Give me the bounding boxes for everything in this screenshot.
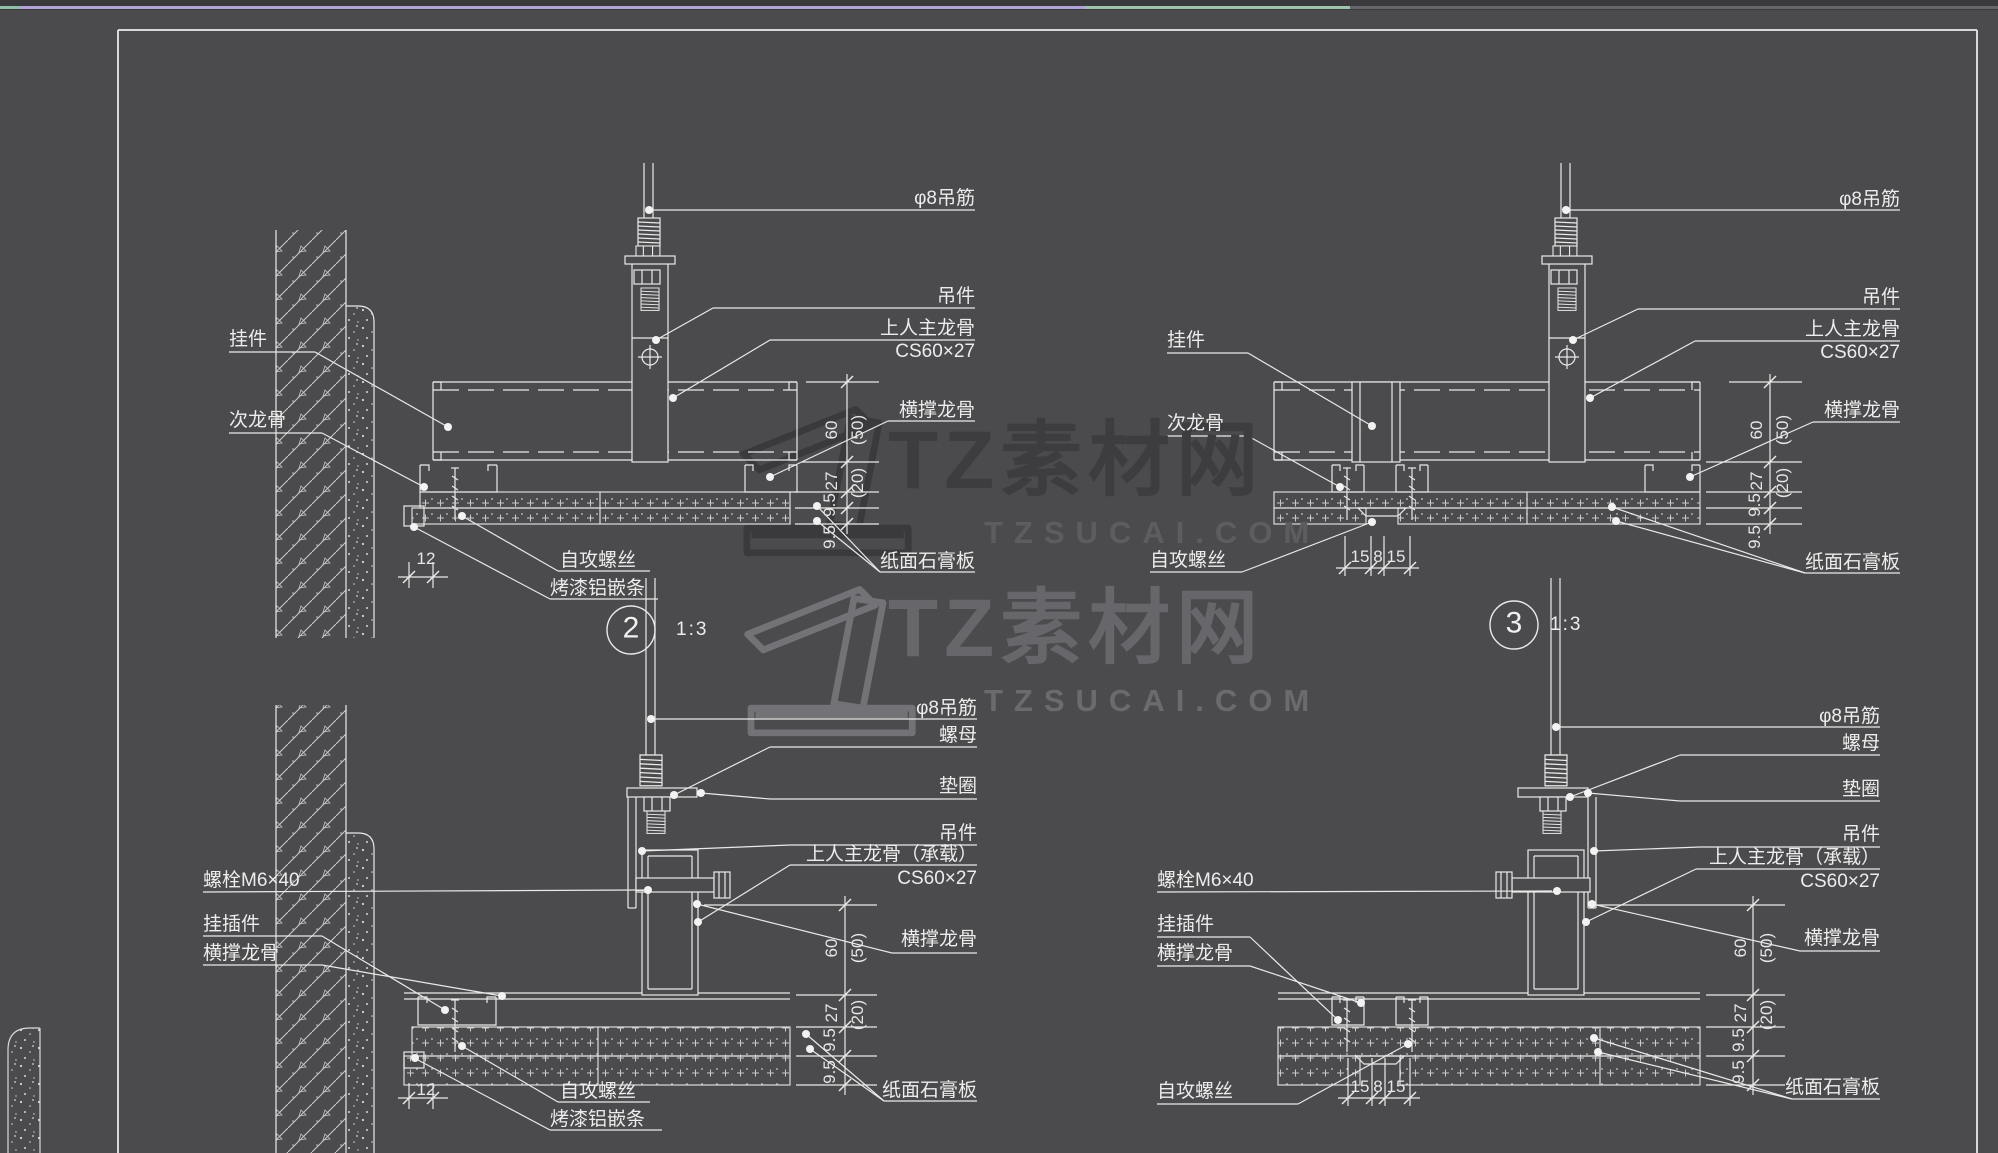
label-washer-br: 垫圈 bbox=[1842, 780, 1880, 800]
detail-scale-2: 1:3 bbox=[676, 619, 708, 641]
drawing-linework bbox=[0, 0, 1998, 1153]
dim-50-br: (50) bbox=[1757, 933, 1777, 963]
label-main-keel-load-br: 上人主龙骨（承载） bbox=[1709, 848, 1880, 868]
dim-15a-d3: 15 bbox=[1351, 547, 1370, 567]
label-bolt-bl: 螺栓M6×40 bbox=[203, 871, 300, 891]
label-nut-br: 螺母 bbox=[1842, 734, 1880, 754]
label-cross-keel-right-bl: 横撑龙骨 bbox=[901, 930, 977, 950]
dim-20-br: (20) bbox=[1757, 1000, 1777, 1030]
cad-sheet: TZ素材网 TZSUCAI.COM TZ素材网 TZSUCAI.COM 挂件 次… bbox=[0, 0, 1998, 1153]
watermark-brand-light: TZ素材网 bbox=[888, 588, 1264, 670]
label-keel-spec-br: CS60×27 bbox=[1800, 872, 1880, 892]
label-keel-spec-d2: CS60×27 bbox=[895, 342, 975, 362]
dim-20-bl: (20) bbox=[848, 1000, 868, 1030]
dim-20-d3: (20) bbox=[1773, 468, 1793, 498]
label-hook-insert-br: 挂插件 bbox=[1157, 915, 1214, 935]
label-main-keel-load-bl: 上人主龙骨（承载） bbox=[806, 845, 977, 865]
label-bolt-br: 螺栓M6×40 bbox=[1157, 871, 1254, 891]
label-cross-keel-d3: 横撑龙骨 bbox=[1824, 401, 1900, 421]
dim-60-d2: 60 bbox=[822, 421, 842, 440]
label-screw-bl: 自攻螺丝 bbox=[560, 1082, 636, 1102]
dim-8-br: 8 bbox=[1373, 1077, 1382, 1097]
label-washer-bl: 垫圈 bbox=[939, 777, 977, 797]
label-sub-keel-d2: 次龙骨 bbox=[229, 411, 286, 431]
label-cross-keel-right-br: 横撑龙骨 bbox=[1804, 929, 1880, 949]
dim-board2-d2: 9.5 bbox=[820, 525, 840, 549]
label-keel-spec-d3: CS60×27 bbox=[1820, 343, 1900, 363]
label-hanger-d3: 吊件 bbox=[1862, 288, 1900, 308]
dim-27-d2: 27 bbox=[822, 472, 842, 491]
corner-fragment bbox=[8, 1028, 40, 1153]
label-hook-insert-bl: 挂插件 bbox=[203, 915, 260, 935]
detail-number-3: 3 bbox=[1506, 607, 1523, 641]
label-sub-keel-d3: 次龙骨 bbox=[1167, 414, 1224, 434]
label-keel-spec-bl: CS60×27 bbox=[897, 869, 977, 889]
dim-60-d3: 60 bbox=[1747, 421, 1767, 440]
detail-bottom-left-drawing bbox=[203, 578, 977, 1153]
dim-50-bl: (50) bbox=[848, 933, 868, 963]
label-gypsum-d2: 纸面石膏板 bbox=[880, 552, 975, 572]
label-hanger-rod-br: φ8吊筋 bbox=[1819, 707, 1880, 727]
dim-board2-bl: 9.5 bbox=[820, 1060, 840, 1084]
label-cross-keel-d2: 横撑龙骨 bbox=[899, 401, 975, 421]
dim-board1-d2: 9.5 bbox=[820, 493, 840, 517]
label-gypsum-bl: 纸面石膏板 bbox=[882, 1081, 977, 1101]
dim-50-d2: (50) bbox=[848, 415, 868, 445]
dim-board1-d3: 9.5 bbox=[1745, 493, 1765, 517]
detail-scale-3: 1:3 bbox=[1550, 614, 1582, 636]
dim-60-bl: 60 bbox=[822, 939, 842, 958]
label-hanger-rod-d2: φ8吊筋 bbox=[914, 189, 975, 209]
label-screw-d3: 自攻螺丝 bbox=[1150, 551, 1226, 571]
label-hanger-br: 吊件 bbox=[1842, 825, 1880, 845]
dim-8-d3: 8 bbox=[1373, 547, 1382, 567]
label-cross-keel-left-br: 横撑龙骨 bbox=[1157, 944, 1233, 964]
dim-board1-bl: 9.5 bbox=[820, 1028, 840, 1052]
dim-15b-d3: 15 bbox=[1387, 547, 1406, 567]
label-alu-strip-bl: 烤漆铝嵌条 bbox=[550, 1110, 645, 1130]
dim-15a-br: 15 bbox=[1351, 1077, 1370, 1097]
label-hook-d2: 挂件 bbox=[229, 330, 267, 350]
watermark-site-upper: TZSUCAI.COM bbox=[984, 515, 1320, 551]
label-alu-strip-d2: 烤漆铝嵌条 bbox=[550, 579, 645, 599]
label-hanger-rod-bl: φ8吊筋 bbox=[916, 699, 977, 719]
dim-27-d3: 27 bbox=[1747, 472, 1767, 491]
dim-board1-br: 9.5 bbox=[1729, 1028, 1749, 1052]
dim-15b-br: 15 bbox=[1387, 1077, 1406, 1097]
watermark-site-lower: TZSUCAI.COM bbox=[984, 683, 1320, 719]
dim-27-bl: 27 bbox=[822, 1004, 842, 1023]
dim-50-d3: (50) bbox=[1773, 415, 1793, 445]
label-screw-d2: 自攻螺丝 bbox=[560, 551, 636, 571]
detail-number-2: 2 bbox=[623, 612, 640, 646]
dim-60-br: 60 bbox=[1731, 939, 1751, 958]
label-main-keel-d3: 上人主龙骨 bbox=[1805, 320, 1900, 340]
label-hanger-bl: 吊件 bbox=[939, 824, 977, 844]
dim-12-bl: 12 bbox=[417, 1080, 436, 1100]
dim-20-d2: (20) bbox=[848, 468, 868, 498]
label-cross-keel-left-bl: 横撑龙骨 bbox=[203, 944, 279, 964]
dim-27-br: 27 bbox=[1731, 1004, 1751, 1023]
label-hook-d3: 挂件 bbox=[1167, 331, 1205, 351]
dim-board2-d3: 9.5 bbox=[1745, 525, 1765, 549]
label-main-keel-d2: 上人主龙骨 bbox=[880, 319, 975, 339]
label-nut-bl: 螺母 bbox=[939, 726, 977, 746]
label-gypsum-d3: 纸面石膏板 bbox=[1805, 553, 1900, 573]
dim-board2-br: 9.5 bbox=[1729, 1060, 1749, 1084]
detail-3-drawing bbox=[1150, 163, 1900, 649]
label-gypsum-br: 纸面石膏板 bbox=[1785, 1078, 1880, 1098]
label-hanger-rod-d3: φ8吊筋 bbox=[1839, 190, 1900, 210]
label-screw-br: 自攻螺丝 bbox=[1157, 1082, 1233, 1102]
label-hanger-d2: 吊件 bbox=[937, 287, 975, 307]
dim-12-d2: 12 bbox=[417, 549, 436, 569]
